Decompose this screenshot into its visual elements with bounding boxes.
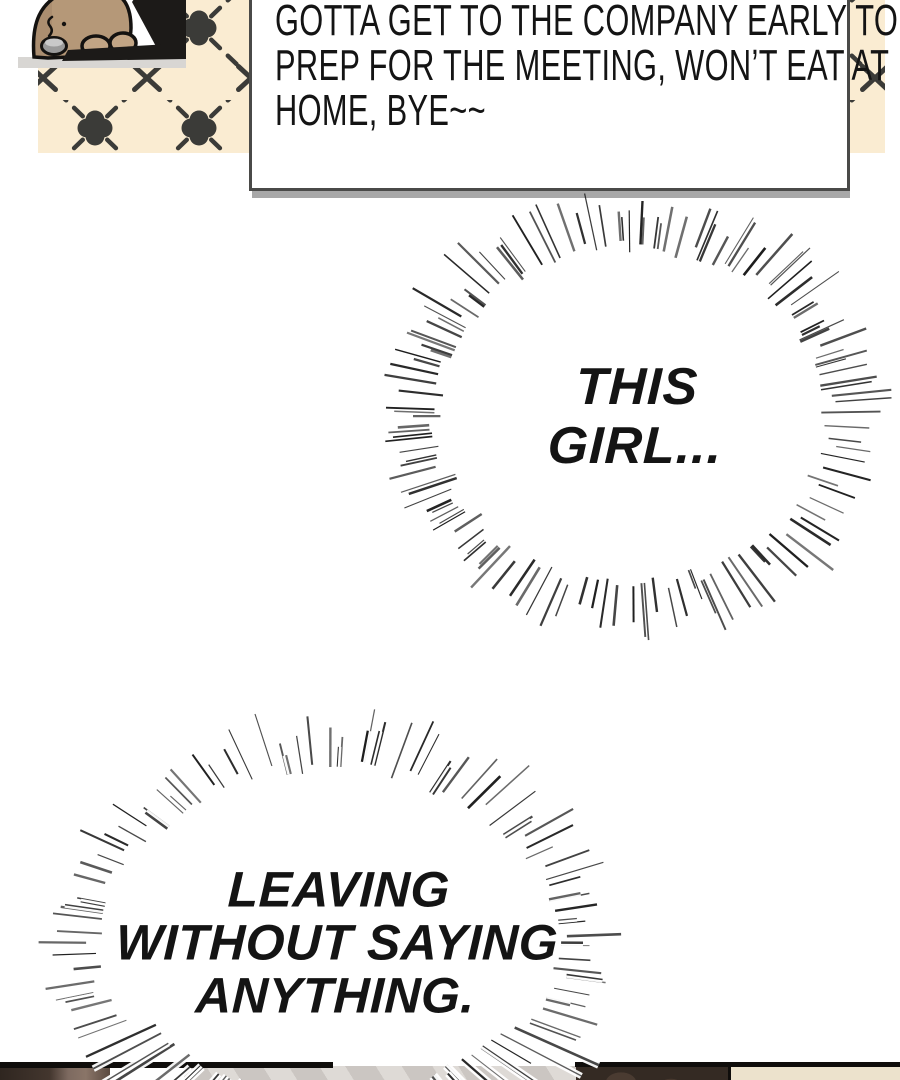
comic-page: { "page":{"type":"webtoon-comic-page","b… [0,0,900,1080]
caption-this-girl: THIS GIRL... [547,358,726,476]
panel-border-left [0,1062,333,1068]
speech-bubble: GOTTA GET TO THE COMPANY EARLY TO PREP F… [249,0,850,191]
speech-line: GOTTA GET TO THE COMPANY EARLY TO [275,0,835,43]
caption-line: ANYTHING. [113,970,557,1023]
panel-hair-left [0,1067,110,1080]
caption-line: THIS [549,358,726,417]
caption-leaving: LEAVING WITHOUT SAYING ANYTHING. [113,864,561,1023]
panel-hair-right [576,1067,729,1080]
caption-line: WITHOUT SAYING [115,917,559,970]
caption-line: LEAVING [117,864,561,917]
cat-at-laptop-illustration [18,0,186,68]
caption-line: GIRL... [547,417,724,476]
speech-line: PREP FOR THE MEETING, WON’T EAT AT [275,43,835,88]
panel-wall-beige [728,1066,900,1080]
panel-blur-background [184,1066,576,1080]
next-panel-strip [0,1062,900,1080]
speech-bubble-text: GOTTA GET TO THE COMPANY EARLY TO PREP F… [275,0,835,133]
speech-line: HOME, BYE~~ [275,88,835,133]
panel-border-right [575,1062,900,1067]
